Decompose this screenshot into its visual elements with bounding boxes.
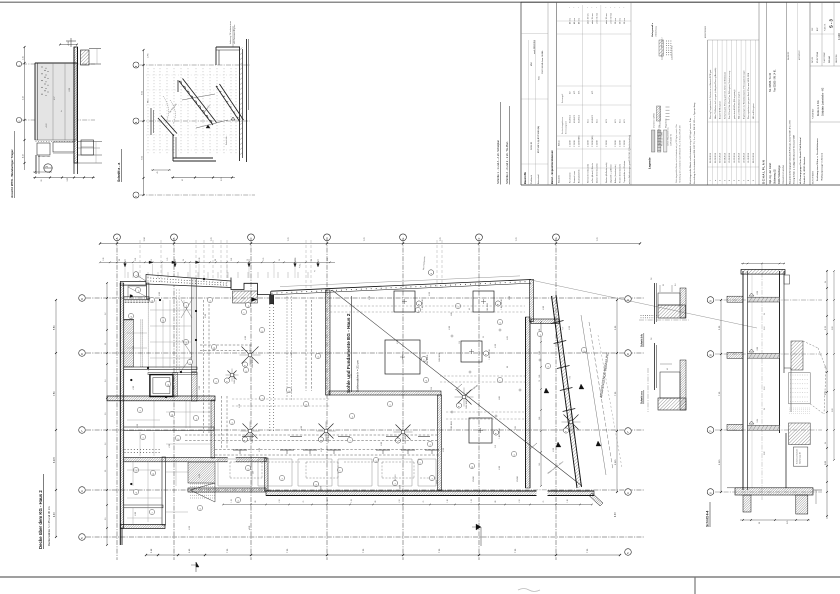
svg-text:24: 24 — [825, 442, 827, 444]
svg-text:db Planungsgruppe Dieter Brand: db Planungsgruppe Dieter Brandt / Dirk B… — [799, 137, 802, 184]
svg-text:Decken (Außenbauteile): Decken (Außenbauteile) — [605, 162, 608, 183]
svg-text:2: 2 — [248, 468, 250, 469]
svg-text:-0.08: -0.08 — [135, 512, 137, 516]
svg-text:-0.08: -0.08 — [499, 466, 501, 470]
svg-text:1.26: 1.26 — [263, 258, 265, 261]
svg-text:"Rathauspassage" in Greven: "Rathauspassage" in Greven — [821, 152, 824, 181]
svg-text:5: 5 — [136, 470, 138, 471]
svg-text:30/60: 30/60 — [400, 485, 402, 489]
svg-text:7: 7 — [244, 312, 246, 313]
svg-text:h=: h= — [61, 110, 63, 112]
svg-text:Georg Schulz u. Ludiger Beckon: Georg Schulz u. Ludiger Beckonzert Gross… — [793, 134, 796, 184]
svg-text:2.01: 2.01 — [135, 258, 137, 261]
svg-text:D: D — [325, 237, 329, 239]
svg-text:2.26: 2.26 — [519, 499, 521, 502]
svg-text:4: 4 — [131, 316, 133, 317]
svg-text:XC4 XC2: XC4 XC2 — [592, 115, 594, 123]
svg-text:W: W — [214, 347, 216, 349]
svg-text:-0.08: -0.08 — [449, 326, 451, 330]
svg-text:1.51: 1.51 — [459, 341, 461, 344]
svg-text:C 25/30: C 25/30 — [597, 140, 599, 147]
svg-text:Holz: Holz — [539, 76, 541, 80]
svg-text:1.98: 1.98 — [351, 499, 353, 502]
svg-text:3.00: 3.00 — [832, 327, 834, 331]
svg-text:2.185: 2.185 — [539, 351, 541, 355]
svg-text:ausbetonierte MW fragend: ausbetonierte MW fragend — [661, 38, 664, 60]
svg-text:aufzehender Stb.: aufzehender Stb. — [671, 45, 674, 60]
svg-text:2: 2 — [143, 437, 145, 438]
svg-text:Planung Treppenhaus 1: Schnitt: Planung Treppenhaus 1: Schnitt a-a und A… — [709, 69, 712, 119]
svg-text:Beton: Beton — [558, 140, 561, 147]
svg-text:S - 3: S - 3 — [829, 18, 834, 28]
svg-text:24: 24 — [825, 366, 827, 368]
svg-text:MD im KG ergänzt: MD im KG ergänzt — [752, 103, 755, 119]
svg-text:1.86: 1.86 — [447, 499, 449, 502]
svg-text:abgestellt u. gefährdet: abgestellt u. gefährdet — [609, 164, 612, 183]
svg-text:ARCHITEKT: ARCHITEKT — [798, 50, 801, 60]
svg-text:z.B. Perimeter 40 g/cm: z.B. Perimeter 40 g/cm — [233, 24, 236, 44]
svg-text:±0.00: ±0.00 — [249, 526, 251, 530]
svg-text:2.64: 2.64 — [764, 387, 766, 390]
svg-text:2.40/2.40/0.60: 2.40/2.40/0.60 — [328, 433, 330, 443]
svg-text:1.25: 1.25 — [787, 521, 789, 524]
svg-text:5: 5 — [216, 381, 218, 382]
svg-text:88: 88 — [375, 501, 377, 503]
svg-text:2.40: 2.40 — [539, 417, 541, 420]
svg-text:48347 Altenberge: 48347 Altenberge — [778, 165, 781, 184]
svg-text:W: W — [152, 300, 154, 302]
svg-text:v Bemerkung: v Bemerkung — [656, 26, 658, 37]
svg-text:1.80/1.80/0.60: 1.80/1.80/0.60 — [422, 299, 424, 309]
svg-text:S C H A L P L A N: S C H A L P L A N — [762, 160, 766, 184]
svg-text:-0.08: -0.08 — [259, 448, 261, 452]
svg-text:-0.38: -0.38 — [321, 448, 323, 452]
svg-text:76: 76 — [247, 259, 249, 261]
svg-text:5: 5 — [430, 444, 432, 445]
svg-text:Betonangriff: Betonangriff — [561, 93, 564, 103]
svg-text:76: 76 — [303, 501, 305, 503]
svg-text:-0.38: -0.38 — [189, 526, 191, 530]
svg-text:-0.38: -0.38 — [443, 448, 445, 452]
svg-text:unten 30 mm: unten 30 mm — [609, 13, 612, 24]
svg-text:-0.08: -0.08 — [69, 88, 71, 92]
svg-text:45: 45 — [469, 308, 471, 310]
svg-text:88: 88 — [495, 501, 497, 503]
svg-text:Ansicht WTN - Wandartiger Träg: Ansicht WTN - Wandartiger Träger — [10, 148, 14, 198]
svg-text:5: 5 — [458, 306, 460, 307]
svg-text:weitere Anforderungen gemäß DI: weitere Anforderungen gemäß DIN 1045-2 (… — [628, 134, 631, 184]
svg-text:C 25/30: C 25/30 — [574, 140, 576, 147]
svg-text:X0: X0 — [569, 92, 571, 94]
svg-text:2.6: 2.6 — [105, 443, 107, 445]
svg-text:XC1: XC1 — [588, 119, 590, 123]
svg-text:95: 95 — [41, 180, 43, 182]
svg-text:Profilstahl: Profilstahl — [530, 175, 533, 184]
svg-text:-0.08: -0.08 — [499, 396, 501, 400]
svg-text:Herstellung der Leichtwände na: Herstellung der Leichtwände nach DIN 410… — [693, 103, 696, 184]
svg-text:10.02.2014: 10.02.2014 — [743, 152, 745, 163]
svg-text:geänderte KG-Plan (EG angezeig: geänderte KG-Plan (EG angezeigt) — [733, 89, 736, 119]
svg-text:30/60: 30/60 — [321, 486, 323, 490]
svg-text:1.38: 1.38 — [199, 258, 201, 261]
svg-text:1.86: 1.86 — [567, 499, 569, 502]
svg-text:Stütterweg 52: Stütterweg 52 — [774, 169, 777, 184]
svg-text:Nicht dargestellte Wände sind: Nicht dargestellte Wände sind Leichtwänd… — [689, 118, 692, 184]
svg-text:Verlegemaß c: Verlegemaß c — [652, 22, 654, 37]
svg-text:-0.38: -0.38 — [397, 340, 399, 344]
svg-text:88: 88 — [311, 259, 313, 261]
svg-text:Legende: Legende — [648, 157, 652, 169]
svg-text:X71: X71 — [579, 91, 581, 94]
svg-text:8: 8 — [500, 322, 502, 323]
svg-text:Sohle und Fundamente EG - Haus: Sohle und Fundamente EG - Haus 2 — [346, 313, 351, 393]
svg-text:2: 2 — [420, 462, 422, 463]
svg-text:Drainbeton GZ610: Drainbeton GZ610 — [652, 113, 655, 128]
svg-text:Sohlenstärke h = 21 cm: Sohlenstärke h = 21 cm — [356, 360, 360, 392]
svg-text:-0.08: -0.08 — [369, 296, 371, 300]
svg-text:2.9: 2.9 — [105, 413, 107, 415]
svg-text:XC4 XC2: XC4 XC2 — [574, 115, 576, 123]
svg-text:Friedhof 29, 48565 Steinfurt: Friedhof 29, 48565 Steinfurt — [803, 156, 806, 184]
svg-text:Planungsänderungen gem. Arch.-: Planungsänderungen gem. Arch.-Plan vom 2… — [747, 73, 750, 119]
svg-text:BST 500 S (A) BST 500 M(A): BST 500 S (A) BST 500 M(A) — [537, 126, 540, 153]
svg-text:C24 / GL24h bzw. GL28h: C24 / GL24h bzw. GL28h — [542, 50, 544, 74]
svg-text:2.40/2.40/60: 2.40/2.40/60 — [439, 353, 441, 362]
svg-text:-0.38: -0.38 — [137, 424, 139, 428]
svg-text:10.02.2014: 10.02.2014 — [739, 152, 741, 163]
svg-text:Errichtung eines Wohn- u. Gesc: Errichtung eines Wohn- u. Geschäftshause… — [816, 137, 819, 181]
svg-text:-2.88: -2.88 — [199, 386, 201, 390]
svg-text:B: B — [172, 237, 176, 239]
svg-text:2.40/2.40/0.60: 2.40/2.40/0.60 — [252, 358, 254, 368]
svg-text:b: b — [248, 305, 250, 306]
svg-text:Bauunternehmungsgemeinschaft R: Bauunternehmungsgemeinschaft Rolfsous-Ce… — [789, 120, 792, 184]
svg-text:oben 20 mm: oben 20 mm — [588, 13, 590, 24]
svg-text:Sohlplatte Lastenkeller - H2: Sohlplatte Lastenkeller - H2 — [822, 87, 825, 116]
svg-text:88: 88 — [119, 259, 121, 261]
svg-text:16.03.2014: 16.03.2014 — [734, 152, 736, 163]
svg-text:C: C — [249, 237, 253, 239]
svg-text:45: 45 — [157, 172, 159, 174]
svg-text:-0.08: -0.08 — [159, 292, 161, 296]
svg-text:Bodenplatte KG: Bodenplatte KG — [578, 169, 581, 183]
svg-text:+5.95: +5.95 — [68, 41, 70, 46]
svg-text:1: 1 — [152, 512, 154, 513]
svg-text:DIN A0: DIN A0 — [828, 55, 831, 63]
svg-text:+2.62: +2.62 — [46, 123, 48, 128]
svg-text:2.26: 2.26 — [495, 445, 497, 448]
svg-text:2.64: 2.64 — [764, 327, 766, 330]
svg-text:-0.08: -0.08 — [351, 374, 353, 378]
svg-text:G: G — [554, 237, 558, 239]
svg-text:TRAGWERKSPLANUNG: TRAGWERKSPLANUNG — [782, 164, 785, 184]
svg-text:Ansicht WTN ergänzt: Ansicht WTN ergänzt — [719, 101, 722, 119]
svg-text:3.4: 3.4 — [105, 380, 107, 382]
svg-text:-0.38: -0.38 — [199, 474, 201, 478]
svg-text:Fax 02505 / 98 14 81: Fax 02505 / 98 14 81 — [774, 69, 777, 92]
svg-text:20.08.2014: 20.08.2014 — [724, 152, 726, 163]
svg-text:675/B01: 675/B01 — [473, 476, 475, 482]
svg-text:2.88: 2.88 — [764, 452, 766, 455]
svg-text:außen (Ansicht) Wände: außen (Ansicht) Wände — [591, 163, 594, 183]
svg-text:-0.08: -0.08 — [543, 306, 545, 310]
svg-text:XC1: XC1 — [597, 119, 599, 123]
svg-text:unbewehrter Beton C 12/15: unbewehrter Beton C 12/15 — [658, 106, 661, 128]
svg-text:Tel. 02505 / 31 40: Tel. 02505 / 31 40 — [769, 72, 772, 92]
svg-text:96: 96 — [483, 336, 485, 338]
svg-text:X71: X71 — [592, 91, 594, 94]
svg-text:C 25/30 (WU): C 25/30 (WU) — [592, 135, 594, 147]
svg-text:1.98: 1.98 — [231, 499, 233, 502]
svg-text:3.30: 3.30 — [67, 178, 69, 182]
svg-text:C 25/30: C 25/30 — [624, 140, 626, 147]
svg-text:88: 88 — [215, 259, 217, 261]
svg-text:4.10: 4.10 — [23, 154, 25, 158]
svg-text:1.9: 1.9 — [105, 518, 107, 520]
svg-text:94: 94 — [279, 259, 281, 261]
svg-text:94: 94 — [183, 259, 185, 261]
svg-text:C 25/30: C 25/30 — [619, 140, 621, 147]
svg-text:9: 9 — [200, 508, 202, 509]
svg-text:GEZ.: GEZ. — [812, 27, 814, 31]
svg-text:Schnitt h/b: Schnitt h/b — [225, 137, 228, 146]
svg-text:Treppenläufe und Podeste: Treppenläufe und Podeste — [623, 161, 626, 183]
svg-text:2.40/2.40/0.60: 2.40/2.40/0.60 — [252, 433, 254, 443]
svg-text:W: W — [172, 414, 174, 416]
svg-text:15.04.2014: 15.04.2014 — [729, 152, 731, 163]
svg-text:Decke über dem KG - Haus 2: Decke über dem KG - Haus 2 — [38, 490, 43, 549]
svg-text:5.10: 5.10 — [23, 96, 25, 100]
svg-text:9: 9 — [306, 404, 308, 405]
svg-text:26.09.2014: 26.09.2014 — [715, 152, 717, 163]
svg-text:88: 88 — [255, 501, 257, 503]
svg-text:6: 6 — [514, 454, 516, 455]
svg-text:6.015: 6.015 — [719, 459, 721, 465]
svg-text:1.40: 1.40 — [539, 375, 541, 378]
svg-text:24: 24 — [825, 281, 827, 283]
svg-text:PLANINHALT: PLANINHALT — [812, 109, 815, 119]
svg-text:Bemessungswert: Bemessungswert — [565, 121, 568, 134]
svg-text:2: 2 — [390, 404, 392, 405]
svg-text:76: 76 — [423, 501, 425, 503]
svg-text:C 25/30: C 25/30 — [569, 140, 571, 147]
svg-text:1.45: 1.45 — [539, 463, 541, 466]
svg-text:7: 7 — [340, 470, 342, 471]
svg-text:XC4 XC2: XC4 XC2 — [579, 115, 581, 123]
svg-text:-2.88: -2.88 — [133, 386, 135, 390]
svg-text:-0.38: -0.38 — [515, 426, 517, 430]
svg-text:3.2: 3.2 — [105, 313, 107, 315]
svg-text:Nicht dargestellte Wände und L: Nicht dargestellte Wände und Leichtwände… — [675, 124, 678, 183]
svg-text:Decken (Innenbauteile): Decken (Innenbauteile) — [596, 163, 599, 183]
svg-text:b: b — [352, 416, 354, 417]
svg-text:C 25/30: C 25/30 — [606, 140, 608, 147]
svg-text:Deckenstärke h = 25 und 30 cm: Deckenstärke h = 25 und 30 cm — [47, 506, 51, 546]
svg-text:6: 6 — [431, 273, 433, 274]
svg-text:Dipl.-Ing. Jan Kafert: Dipl.-Ing. Jan Kafert — [769, 163, 772, 184]
svg-text:2.40/2.40/0.60: 2.40/2.40/0.60 — [405, 434, 407, 444]
svg-text:2.01: 2.01 — [431, 387, 433, 390]
svg-text:1.80/1.80/45: 1.80/1.80/45 — [451, 421, 453, 430]
svg-text:9: 9 — [163, 320, 165, 321]
svg-text:Herstellung der Leichtwände na: Herstellung der Leichtwände nach DIN 410… — [679, 126, 682, 184]
svg-text:1.50/1.50/45: 1.50/1.50/45 — [487, 303, 489, 312]
svg-text:1.80/1.80/0.60: 1.80/1.80/0.60 — [499, 428, 501, 438]
svg-text:Fundamente: Fundamente — [568, 172, 571, 183]
svg-text:1.16: 1.16 — [23, 56, 25, 60]
svg-text:3: 3 — [548, 366, 550, 367]
svg-text:XC1: XC1 — [615, 119, 617, 123]
svg-text:-5.64: -5.64 — [757, 419, 759, 423]
svg-text:Höhe TG-Decke: ab 6 cm geä. (n: Höhe TG-Decke: ab 6 cm geä. (n.Angabe Pl… — [714, 67, 717, 119]
svg-text:Isolierung OK anbetonieren: Isolierung OK anbetonieren — [229, 21, 232, 44]
svg-text:4.33: 4.33 — [615, 512, 617, 517]
svg-text:unten 35 mm: unten 35 mm — [596, 13, 599, 24]
svg-text:2.01: 2.01 — [231, 258, 233, 261]
svg-text:76: 76 — [543, 501, 545, 503]
svg-text:Schnitt a - a: Schnitt a - a — [117, 163, 121, 182]
svg-text:XC4 XC2: XC4 XC2 — [569, 115, 571, 123]
svg-text:-0.08: -0.08 — [245, 336, 247, 340]
svg-text:X71: X71 — [574, 91, 576, 94]
svg-text:2.40/2.40/0.60: 2.40/2.40/0.60 — [466, 399, 468, 409]
svg-text:1.38: 1.38 — [103, 258, 105, 261]
svg-text:3: 3 — [432, 478, 434, 479]
svg-text:Pos. S2 entf. Stb. Wand Pos.: Pos. S2 entf. Stb. Wand Pos. W6 ergänzt,… — [728, 70, 731, 119]
svg-text:-0.08: -0.08 — [381, 442, 383, 446]
svg-text:3: 3 — [316, 484, 318, 485]
svg-text:Decke ü. d. KG: Decke ü. d. KG — [818, 100, 820, 116]
svg-text:Schnitt b-b: Schnitt b-b — [641, 333, 644, 347]
svg-text:2.01: 2.01 — [327, 258, 329, 261]
svg-text:C 25/30 (WU): C 25/30 (WU) — [579, 135, 581, 147]
svg-text:-2.88: -2.88 — [169, 444, 171, 448]
svg-text:8: 8 — [318, 356, 320, 357]
svg-text:ÄNDERUNGEN: ÄNDERUNGEN — [704, 25, 707, 38]
svg-text:W: W — [472, 466, 474, 468]
svg-text:91: 91 — [182, 179, 184, 181]
svg-text:F: F — [477, 237, 481, 239]
svg-text:XC3: XC3 — [606, 119, 608, 123]
svg-text:nach DIN 1053: nach DIN 1053 — [534, 39, 536, 54]
svg-text:30.07.2014: 30.07.2014 — [720, 152, 722, 163]
svg-text:Schnitte 2 - 2 und 3 - 3 sh. T: Schnitte 2 - 2 und 3 - 3 sh. TG-Plan — [505, 141, 509, 184]
svg-text:-0.38: -0.38 — [569, 326, 571, 330]
svg-text:2.26: 2.26 — [279, 499, 281, 502]
svg-text:4.57: 4.57 — [54, 97, 56, 101]
svg-text:1.38: 1.38 — [295, 258, 297, 261]
svg-text:Schnitt a-a: Schnitt a-a — [641, 391, 644, 404]
svg-text:1.19: 1.19 — [529, 349, 531, 352]
svg-text:Beschreibungsklassen: Beschreibungsklassen — [561, 117, 564, 134]
svg-text:76: 76 — [539, 380, 541, 382]
svg-text:S235 JR: S235 JR — [531, 142, 533, 150]
svg-text:-0.38: -0.38 — [495, 344, 497, 348]
svg-text:b: b — [186, 305, 188, 306]
svg-text:3: 3 — [395, 483, 397, 484]
svg-text:76: 76 — [151, 259, 153, 261]
svg-text:1.765: 1.765 — [148, 54, 150, 59]
svg-text:6: 6 — [186, 342, 188, 343]
svg-text:24: 24 — [764, 313, 766, 315]
svg-text:1.26: 1.26 — [167, 258, 169, 261]
svg-text:-0.08: -0.08 — [451, 312, 453, 316]
svg-text:BAUHERR: BAUHERR — [787, 51, 790, 60]
svg-text:b: b — [540, 334, 542, 335]
svg-text:3.1: 3.1 — [105, 470, 107, 472]
svg-text:Baustoffe: Baustoffe — [523, 171, 527, 184]
svg-text:BAUVORHABEN: BAUVORHABEN — [812, 170, 815, 184]
svg-text:Beton - Expositionsklassen: Beton - Expositionsklassen — [550, 150, 554, 184]
svg-text:Schnitte 1 - 1 und A - A sh. S: Schnitte 1 - 1 und A - A sh. Schalplan — [496, 139, 500, 184]
svg-text:7: 7 — [500, 380, 502, 381]
svg-text:28.01.2014: 28.01.2014 — [753, 152, 755, 163]
svg-text:-0.38: -0.38 — [507, 336, 509, 340]
svg-text:Frostschürzen: Frostschürzen — [573, 171, 576, 183]
svg-text:-0.38: -0.38 — [429, 292, 431, 296]
svg-text:MW: MW — [531, 62, 533, 66]
svg-text:Magerbeton: Magerbeton — [664, 118, 667, 128]
svg-text:Stützen (Innenbereich): Stützen (Innenbereich) — [618, 164, 621, 183]
svg-text:-2.88: -2.88 — [757, 347, 759, 351]
svg-text:oben 30 mm: oben 30 mm — [606, 13, 608, 24]
svg-text:W: W — [153, 473, 155, 475]
svg-text:-0.38: -0.38 — [553, 448, 555, 452]
svg-text:3: 3 — [282, 478, 284, 479]
svg-text:4.33: 4.33 — [54, 512, 56, 517]
svg-text:XC1: XC1 — [619, 119, 621, 123]
svg-text:30: 30 — [759, 522, 761, 524]
svg-text:6.015: 6.015 — [54, 457, 56, 463]
svg-text:1.80/1.80/0.60: 1.80/1.80/0.60 — [427, 355, 429, 365]
svg-text:GZ/Z13 Lage 30: GZ/Z13 Lage 30 — [800, 452, 802, 464]
svg-text:n.DIN 4103 T/1: n.DIN 4103 T/1 — [671, 134, 673, 146]
svg-text:-0.38: -0.38 — [205, 314, 207, 318]
svg-text:24: 24 — [764, 408, 766, 410]
svg-text:C 25/30: C 25/30 — [588, 140, 590, 147]
svg-text:5.50: 5.50 — [54, 325, 56, 330]
svg-text:Schächte gem. Planung geändert: Schächte gem. Planung geändert, höhen de… — [723, 72, 726, 119]
svg-text:C 25/30: C 25/30 — [615, 140, 617, 147]
svg-text:3.21: 3.21 — [221, 178, 223, 182]
svg-text:oben 35 mm: oben 35 mm — [592, 13, 594, 24]
svg-text:1: 1 — [350, 440, 352, 441]
svg-text:Betonstahl: Betonstahl — [537, 174, 540, 184]
svg-text:Ergänzungen zur Winkelstützwan: Ergänzungen zur Winkelstützwand ; Planun… — [742, 70, 745, 119]
svg-text:Wände (Innenbauteile): Wände (Innenbauteile) — [587, 164, 590, 183]
svg-text:7.50: 7.50 — [54, 391, 56, 396]
svg-text:WD und DG KG-Decken ergänzt: WD und DG KG-Decken ergänzt — [738, 91, 741, 119]
svg-text:6.015: 6.015 — [615, 459, 617, 465]
svg-text:1.4: 1.4 — [675, 284, 677, 286]
svg-text:6: 6 — [232, 422, 234, 423]
svg-text:2.26: 2.26 — [399, 499, 401, 502]
svg-text:1.80/1.80/0.60: 1.80/1.80/0.60 — [489, 349, 491, 359]
svg-text:1.86: 1.86 — [327, 499, 329, 502]
svg-text:88.5: 88.5 — [148, 100, 150, 104]
svg-text:35: 35 — [663, 284, 665, 286]
svg-text:2.40/2.40/0.60: 2.40/2.40/0.60 — [234, 374, 236, 384]
svg-text:Schnitt 4-4: Schnitt 4-4 — [706, 510, 710, 527]
svg-text:-0.08: -0.08 — [509, 296, 511, 300]
svg-text:19.12.2014: 19.12.2014 — [748, 152, 750, 163]
svg-text:A: A — [115, 237, 119, 239]
svg-text:3: 3 — [140, 410, 142, 411]
svg-text:Bauteile: Bauteile — [558, 174, 561, 183]
svg-text:-0.08: -0.08 — [291, 352, 293, 356]
svg-text:2.1: 2.1 — [105, 343, 107, 345]
svg-text:Balkon (Innenbereich): Balkon (Innenbereich) — [614, 164, 617, 183]
